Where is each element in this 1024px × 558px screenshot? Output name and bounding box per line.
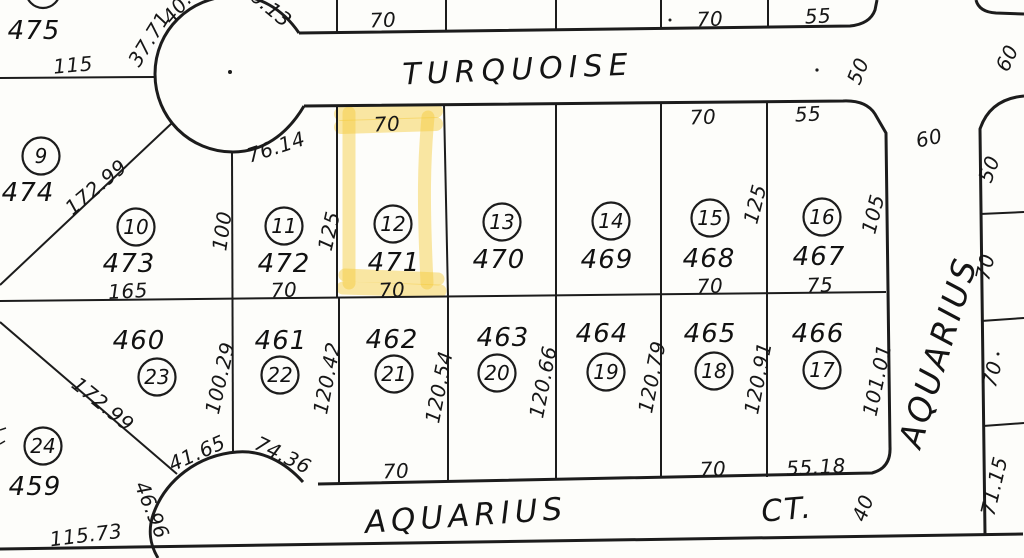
dimension-label: 60 [914, 124, 945, 153]
dimension-label: 100.29 [200, 340, 240, 417]
parcel-number: 468 [683, 244, 736, 274]
lot-number: 13 [489, 210, 514, 234]
dimension-label: 120.54 [420, 349, 457, 425]
parcel-number: 475 [8, 16, 61, 46]
street-name-aquarius-right: AQUARIUS [890, 252, 985, 454]
parcel-number: 462 [366, 325, 419, 355]
dimension-label: 74.36 [251, 431, 315, 479]
dimension-label: 172.99 [67, 372, 139, 437]
dimension-label: 120.42 [308, 340, 345, 416]
dimension-label: 70 [696, 274, 723, 299]
parcel-number: 469 [581, 245, 634, 275]
dimension-label: 70 [699, 457, 726, 482]
dimension-label: 120.91 [739, 340, 776, 416]
parcel-number: 461 [255, 326, 308, 356]
dimension-label: 55 [794, 101, 822, 126]
lot-number: 10 [123, 215, 148, 239]
dimension-label: 165 [108, 278, 149, 304]
parcel-number: 463 [477, 323, 530, 353]
dimension-label: 70 [270, 278, 297, 303]
dimension-label: 55 [804, 3, 832, 28]
dimension-label: 6.13 [245, 0, 296, 32]
lot-number: 9 [35, 144, 48, 168]
dimension-label: 70 [373, 111, 401, 136]
parcel-number: 467 [793, 242, 846, 272]
dimension-label: 70 [382, 459, 409, 484]
street-suffix-ct: CT. [760, 490, 814, 529]
dimension-label: 120.79 [633, 339, 670, 415]
lot-number: 15 [697, 206, 722, 230]
dimension-label: 172.99 [60, 154, 131, 219]
dimension-label: 55.18 [786, 453, 847, 480]
parcel-number: 466 [792, 319, 845, 349]
dimension-label: 40 [847, 491, 879, 524]
plat-map: 11537.7140.6.1370705550606076.1470705512… [0, 0, 1024, 558]
parcel-number: 470 [473, 245, 526, 275]
parcel-number: 474 [2, 178, 55, 208]
street-name-turquoise: TURQUOISE [402, 47, 634, 92]
dimension-label: 50 [842, 54, 874, 88]
plat-map-svg: 11537.7140.6.1370705550606076.1470705512… [0, 0, 1024, 558]
parcel-number: 472 [258, 249, 311, 279]
lot-number: 17 [809, 358, 835, 382]
parcel-number: 465 [684, 319, 737, 349]
dimension-label: 60 [991, 41, 1024, 75]
lot-number: 19 [593, 360, 618, 384]
dimension-label: 70 [378, 277, 406, 302]
parcel-number: 464 [576, 319, 629, 349]
dimension-label: 70 [977, 358, 1007, 389]
lot-number: 12 [380, 212, 405, 236]
parcel-number: 471 [368, 248, 421, 278]
lot-number: 14 [598, 209, 623, 233]
lot-number: 24 [30, 434, 55, 458]
dimension-label: 70 [369, 8, 396, 33]
dimension-label: 115 [52, 51, 94, 78]
lot-number: 22 [267, 363, 292, 387]
dimension-label: 76.14 [244, 126, 308, 167]
dimension-label: 105 [857, 192, 890, 236]
dimension-label: 71.15 [976, 454, 1013, 518]
street-name-aquarius-ct: AQUARIUS [362, 491, 569, 541]
lot-number: 16 [809, 205, 834, 229]
dimension-label: 70 [689, 105, 716, 130]
dimension-label: 125 [313, 209, 345, 253]
lot-number: 23 [144, 365, 169, 389]
dimension-label: 41.65 [165, 430, 229, 476]
dimension-label: 75 [806, 273, 833, 298]
dimension-label: 50 [973, 152, 1005, 185]
parcel-number: 459 [9, 472, 62, 502]
dimension-label: 70 [696, 7, 723, 32]
parcel-number: 473 [103, 249, 156, 279]
lot-number: 21 [381, 362, 406, 386]
lot-number: 11 [271, 214, 296, 238]
parcel-number: 460 [113, 326, 166, 356]
lot-number: 18 [701, 359, 726, 383]
lot-number: 20 [484, 361, 509, 385]
